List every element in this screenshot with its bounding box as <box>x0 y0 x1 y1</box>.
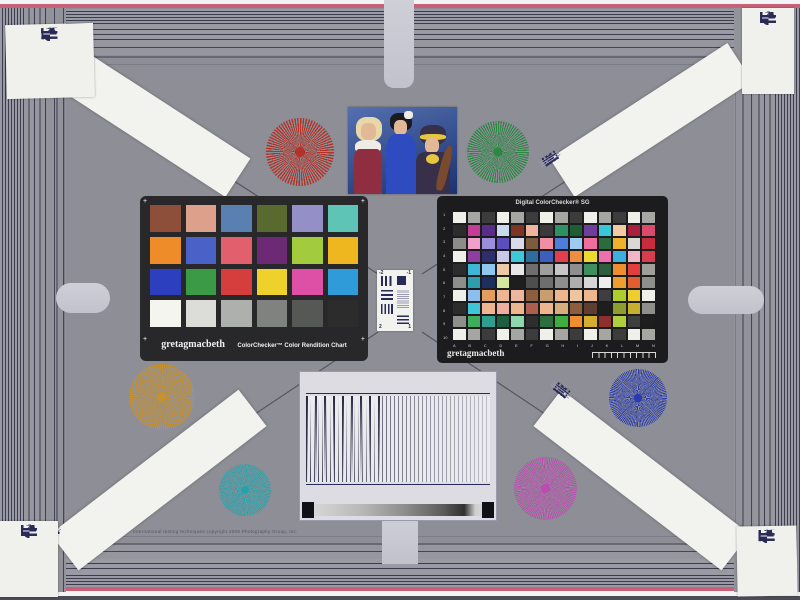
sg-patch <box>453 251 466 262</box>
sg-patch <box>526 290 539 301</box>
colorchecker-24-grid <box>150 205 358 327</box>
cc24-patch <box>186 205 217 232</box>
sg-patch <box>526 264 539 275</box>
sg-axis-label: K <box>606 343 609 348</box>
sg-patch <box>497 238 510 249</box>
sg-patch <box>613 238 626 249</box>
sg-axis-label: 5 <box>443 267 447 272</box>
corner-card-number: 2 <box>765 530 768 536</box>
sg-patch <box>497 290 510 301</box>
sg-patch <box>526 277 539 288</box>
sg-patch <box>453 212 466 223</box>
sg-patch <box>613 264 626 275</box>
registration-cross-icon: + <box>361 198 365 205</box>
sg-patch <box>511 238 524 249</box>
sg-patch <box>555 238 568 249</box>
corner-card-number: 2 <box>27 525 30 531</box>
sg-patch <box>584 225 597 236</box>
sg-patch <box>599 212 612 223</box>
sg-patch <box>570 238 583 249</box>
right-center-registration-tab <box>688 286 764 314</box>
corner-resolution-card-top-right: -21-12 <box>742 8 794 94</box>
siemens-star-magenta <box>514 457 577 520</box>
test-chart-board: -21-12 -21-12 -21-12 -21-12 + + + + g <box>0 0 800 600</box>
sg-axis-label: I <box>577 343 578 348</box>
sg-axis-label: L <box>621 343 623 348</box>
ramp-end-block <box>302 502 314 518</box>
sg-patch <box>511 251 524 262</box>
colorchecker-sg-chart: Digital ColorChecker® SG 12345678910 ABC… <box>437 196 668 363</box>
sg-axis-label: 1 <box>443 212 447 217</box>
photo-figure-left-face <box>361 123 376 140</box>
frequency-sweep-panel <box>299 371 497 521</box>
sg-patch <box>642 290 655 301</box>
center-usaf-resolution-card: -2 -1 2 1 <box>377 270 413 331</box>
sg-patch <box>497 277 510 288</box>
usaf-bar-group <box>397 314 409 324</box>
sg-patch <box>453 225 466 236</box>
sg-patch <box>642 329 655 340</box>
sg-patch <box>526 251 539 262</box>
sg-patch <box>570 329 583 340</box>
usaf-bar-group <box>381 290 393 300</box>
sg-patch <box>540 238 553 249</box>
sg-axis-label: 9 <box>443 321 447 326</box>
sg-patch <box>555 290 568 301</box>
cc24-patch <box>150 269 181 296</box>
strip-pattern-module <box>561 390 562 391</box>
sg-axis-label: E <box>515 343 518 348</box>
photo-figure-left-bodice <box>354 149 382 194</box>
sg-patch <box>613 277 626 288</box>
sg-patch <box>570 290 583 301</box>
sg-patch <box>584 316 597 327</box>
sg-patch <box>599 316 612 327</box>
corner-resolution-card-top-left: -21-12 <box>5 23 95 99</box>
sg-axis-label: N <box>652 343 655 348</box>
sg-patch <box>497 303 510 314</box>
grayscale-ramp <box>306 504 490 516</box>
sg-patch <box>613 251 626 262</box>
cc24-patch <box>328 300 359 327</box>
sg-patch <box>642 251 655 262</box>
cc24-patch <box>221 269 252 296</box>
sg-patch <box>526 238 539 249</box>
sg-patch <box>497 329 510 340</box>
sg-patch <box>555 251 568 262</box>
sg-axis-label: 4 <box>443 253 447 258</box>
cc24-patch <box>150 237 181 264</box>
sg-patch <box>526 212 539 223</box>
usaf-number: 1 <box>408 325 411 330</box>
corner-resolution-card-bottom-right: -21-12 <box>736 525 797 596</box>
siemens-star-red <box>266 118 334 186</box>
registration-cross-icon: + <box>361 336 365 343</box>
sg-patch <box>482 212 495 223</box>
fine-print-text: International testing techniques copyrig… <box>133 529 298 534</box>
photo-figure-middle-dress <box>386 134 416 194</box>
sg-patch <box>511 316 524 327</box>
sg-patch <box>468 277 481 288</box>
sg-patch <box>599 329 612 340</box>
sg-patch <box>555 303 568 314</box>
sg-patch <box>599 264 612 275</box>
siemens-star-gold <box>129 364 195 430</box>
cc24-patch <box>257 300 288 327</box>
sg-patch <box>482 238 495 249</box>
sg-patch <box>584 264 597 275</box>
sg-patch <box>613 225 626 236</box>
cc24-patch <box>292 269 323 296</box>
sg-patch <box>555 316 568 327</box>
sg-patch <box>482 290 495 301</box>
photo-figure-middle-hairpiece <box>404 111 413 119</box>
sg-patch <box>482 251 495 262</box>
cc24-patch <box>328 237 359 264</box>
sg-patch <box>570 225 583 236</box>
sg-patch <box>613 303 626 314</box>
sg-patch <box>642 264 655 275</box>
cc24-patch <box>257 205 288 232</box>
sg-brand-label: gretagmacbeth <box>447 348 504 358</box>
sg-patch <box>511 212 524 223</box>
sg-patch <box>642 212 655 223</box>
sg-patch <box>497 264 510 275</box>
sg-patch <box>584 212 597 223</box>
usaf-bar-group <box>381 304 393 314</box>
sg-patch <box>628 290 641 301</box>
sg-patch <box>642 316 655 327</box>
usaf-square <box>397 276 406 285</box>
cc24-patch <box>292 300 323 327</box>
sg-patch <box>453 290 466 301</box>
cc24-patch <box>257 269 288 296</box>
sg-axis-label: 2 <box>443 226 447 231</box>
sweep-divider-line <box>306 484 490 485</box>
corner-card-number: 2 <box>766 12 769 18</box>
sg-patch <box>642 277 655 288</box>
cc24-patch <box>186 237 217 264</box>
sg-patch <box>599 303 612 314</box>
sg-axis-label: F <box>530 343 532 348</box>
sweep-divider-line <box>306 393 490 394</box>
sg-patch <box>453 277 466 288</box>
sg-patch <box>570 277 583 288</box>
sg-patch <box>540 329 553 340</box>
sg-patch <box>628 225 641 236</box>
siemens-star-blue <box>609 369 667 427</box>
sg-patch <box>555 329 568 340</box>
sg-patch <box>453 316 466 327</box>
sg-patch <box>642 303 655 314</box>
sg-patch <box>613 212 626 223</box>
cc24-patch <box>150 300 181 327</box>
sg-patch <box>511 329 524 340</box>
sg-patch <box>628 238 641 249</box>
cc24-patch <box>328 269 359 296</box>
corner-resolution-card-bottom-left: -21-12 <box>0 521 58 597</box>
corner-card-number: 2 <box>47 28 50 34</box>
sg-patch <box>628 303 641 314</box>
cc24-patch <box>150 205 181 232</box>
sg-patch <box>584 290 597 301</box>
sg-patch <box>468 303 481 314</box>
sg-patch <box>526 225 539 236</box>
colorchecker-24-chart: + + + + gretagmacbeth ColorChecker™ Colo… <box>140 196 368 361</box>
sg-patch <box>482 264 495 275</box>
sweep-bar-bottom <box>306 487 490 500</box>
sg-patch <box>599 251 612 262</box>
sg-patch <box>453 303 466 314</box>
sweep-bar-top <box>306 377 490 390</box>
cc24-patch <box>221 205 252 232</box>
sg-patch <box>555 277 568 288</box>
sg-patch <box>540 212 553 223</box>
cc24-patch <box>186 300 217 327</box>
usaf-number: 2 <box>379 325 382 330</box>
sg-patch <box>555 225 568 236</box>
sg-patch <box>584 303 597 314</box>
left-center-registration-tab <box>56 283 110 313</box>
cc24-label-row: gretagmacbeth ColorChecker™ Color Rendit… <box>140 334 368 352</box>
cc24-patch <box>221 300 252 327</box>
cc24-chart-name-label: ColorChecker™ Color Rendition Chart <box>237 343 346 349</box>
sg-patch <box>482 303 495 314</box>
sg-patch <box>482 316 495 327</box>
sg-patch <box>468 264 481 275</box>
cc24-patch <box>292 205 323 232</box>
photo-figure-right-face <box>425 138 439 153</box>
sg-patch <box>540 251 553 262</box>
sg-patch <box>540 225 553 236</box>
sg-patch <box>511 277 524 288</box>
sg-patch-grid <box>453 212 655 340</box>
sg-patch <box>468 329 481 340</box>
ramp-end-block <box>482 502 494 518</box>
sg-title-label: Digital ColorChecker® SG <box>437 200 668 206</box>
cc24-patch <box>257 237 288 264</box>
sg-ruler-scale <box>592 352 656 358</box>
sg-patch <box>584 329 597 340</box>
sg-patch <box>540 277 553 288</box>
sg-axis-label: 10 <box>443 335 447 340</box>
portrait-test-photo <box>348 107 457 194</box>
cc24-brand-label: gretagmacbeth <box>161 339 225 350</box>
usaf-micro-pattern <box>397 290 409 308</box>
sg-patch <box>628 264 641 275</box>
sg-patch <box>599 225 612 236</box>
siemens-star-green <box>467 121 529 183</box>
sg-patch <box>642 225 655 236</box>
sg-patch <box>497 316 510 327</box>
sg-patch <box>613 316 626 327</box>
sg-patch <box>628 212 641 223</box>
cc24-patch <box>328 205 359 232</box>
photo-figure-right-necklace <box>426 154 439 164</box>
sg-patch <box>628 251 641 262</box>
sg-patch <box>628 277 641 288</box>
sg-patch <box>453 238 466 249</box>
sg-patch <box>570 251 583 262</box>
sg-patch <box>497 251 510 262</box>
sg-patch <box>613 290 626 301</box>
sg-patch <box>540 264 553 275</box>
photo-figure-middle-face <box>394 120 407 135</box>
sg-axis-label: G <box>546 343 549 348</box>
sg-axis-label: 3 <box>443 239 447 244</box>
cc24-patch <box>186 269 217 296</box>
sg-patch <box>482 225 495 236</box>
siemens-star-teal <box>219 464 271 516</box>
sg-patch <box>497 212 510 223</box>
sg-patch <box>468 238 481 249</box>
sg-patch <box>555 264 568 275</box>
sg-patch <box>468 212 481 223</box>
cc24-patch <box>292 237 323 264</box>
usaf-bar-group <box>381 276 393 286</box>
sg-patch <box>599 277 612 288</box>
sg-patch <box>540 316 553 327</box>
sg-patch <box>555 212 568 223</box>
sg-patch <box>468 225 481 236</box>
sg-patch <box>540 303 553 314</box>
sg-patch <box>511 264 524 275</box>
sg-patch <box>570 303 583 314</box>
sg-patch <box>584 238 597 249</box>
top-center-registration-tab <box>384 0 414 88</box>
sg-patch <box>453 329 466 340</box>
sg-patch <box>468 316 481 327</box>
registration-cross-icon: + <box>143 198 147 205</box>
sg-patch <box>482 329 495 340</box>
sg-patch <box>628 316 641 327</box>
registration-cross-icon: + <box>143 336 147 343</box>
sg-patch <box>468 290 481 301</box>
sg-patch <box>584 251 597 262</box>
sg-patch <box>482 277 495 288</box>
sg-axis-label: 7 <box>443 294 447 299</box>
sg-patch <box>511 303 524 314</box>
sg-axis-label: J <box>591 343 593 348</box>
sg-patch <box>628 329 641 340</box>
sg-patch <box>497 225 510 236</box>
sg-patch <box>613 329 626 340</box>
sg-patch <box>599 238 612 249</box>
sg-patch <box>570 316 583 327</box>
cc24-patch <box>221 237 252 264</box>
strip-pattern-module <box>550 158 551 159</box>
sg-axis-label: M <box>636 343 639 348</box>
sg-patch <box>526 329 539 340</box>
sg-patch <box>642 238 655 249</box>
sg-patch <box>599 290 612 301</box>
sg-axis-label: H <box>561 343 564 348</box>
sg-patch <box>511 225 524 236</box>
sg-axis-label: 6 <box>443 280 447 285</box>
sg-patch <box>526 303 539 314</box>
usaf-number: -1 <box>407 271 411 276</box>
sg-patch <box>453 264 466 275</box>
sg-patch <box>570 264 583 275</box>
sg-patch <box>584 277 597 288</box>
sg-axis-label: 8 <box>443 308 447 313</box>
sg-patch <box>526 316 539 327</box>
sweep-field <box>306 396 490 482</box>
sg-patch <box>511 290 524 301</box>
sg-patch <box>468 251 481 262</box>
sg-patch <box>540 290 553 301</box>
sg-row-labels: 12345678910 <box>443 212 447 340</box>
sg-patch <box>570 212 583 223</box>
